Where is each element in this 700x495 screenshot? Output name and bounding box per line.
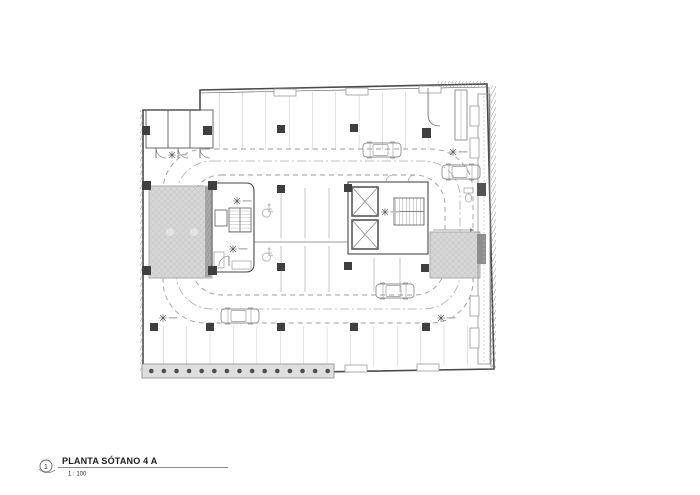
column — [150, 323, 158, 331]
column — [142, 126, 150, 135]
elevator-core — [348, 175, 428, 254]
vent-box — [419, 86, 441, 93]
column — [344, 262, 352, 270]
column — [422, 128, 431, 138]
top-right-rooms — [428, 88, 467, 140]
drawing-sheet: 1 PLANTA SÓTANO 4 A 1 : 100 — [0, 0, 700, 495]
column — [208, 181, 217, 190]
vent-box — [346, 88, 368, 95]
parking-stalls-top — [219, 92, 430, 150]
car-icon — [221, 308, 259, 324]
ramp-arrow — [470, 228, 474, 232]
drawing-title: PLANTA SÓTANO 4 A — [62, 455, 158, 466]
shaft-block — [477, 183, 486, 196]
vent-box — [470, 296, 479, 316]
wheelchair-icon — [262, 247, 273, 261]
column — [344, 184, 352, 192]
vent-box — [345, 365, 367, 372]
car-icon — [442, 164, 480, 180]
vent-box — [470, 138, 479, 158]
column — [350, 124, 358, 132]
level-marker-icon — [168, 151, 186, 159]
stair-core-left — [212, 183, 254, 272]
ventilation-shaft-right — [464, 94, 490, 364]
vent-box — [470, 328, 479, 348]
sheet-number: 1 — [44, 464, 48, 471]
column — [277, 263, 285, 271]
level-marker-icon — [159, 314, 177, 322]
car-icon — [376, 283, 414, 299]
ramp-dot — [190, 228, 198, 236]
stair-left — [229, 208, 251, 232]
vent-box — [417, 364, 439, 371]
parking-stalls-bottom — [163, 326, 477, 366]
wall-hatch-left — [140, 110, 143, 375]
drawing-scale: 1 : 100 — [68, 472, 87, 478]
accessible-parking — [262, 203, 273, 261]
ramp-left — [149, 186, 212, 278]
storage-rooms — [146, 110, 213, 158]
column — [421, 264, 429, 272]
column — [277, 185, 285, 193]
wall-hatch-right — [491, 86, 496, 369]
vent-box — [470, 106, 479, 126]
column — [350, 323, 358, 331]
column — [206, 323, 214, 331]
title-block: 1 PLANTA SÓTANO 4 A 1 : 100 — [39, 455, 228, 478]
column — [203, 126, 212, 135]
wall-hatch-top — [437, 81, 487, 87]
floor-plan-canvas: 1 PLANTA SÓTANO 4 A 1 : 100 — [0, 0, 700, 495]
column — [208, 266, 217, 275]
column — [277, 323, 285, 331]
wheelchair-icon — [262, 203, 273, 217]
door-swing — [386, 175, 415, 182]
pile-wall — [142, 364, 334, 378]
column — [142, 266, 151, 275]
ramp-dot — [166, 228, 174, 236]
level-marker-icon — [437, 314, 455, 322]
wc-fixture — [464, 188, 473, 202]
column — [422, 323, 430, 331]
column — [277, 125, 285, 133]
column — [142, 181, 151, 190]
vent-box — [274, 89, 296, 96]
